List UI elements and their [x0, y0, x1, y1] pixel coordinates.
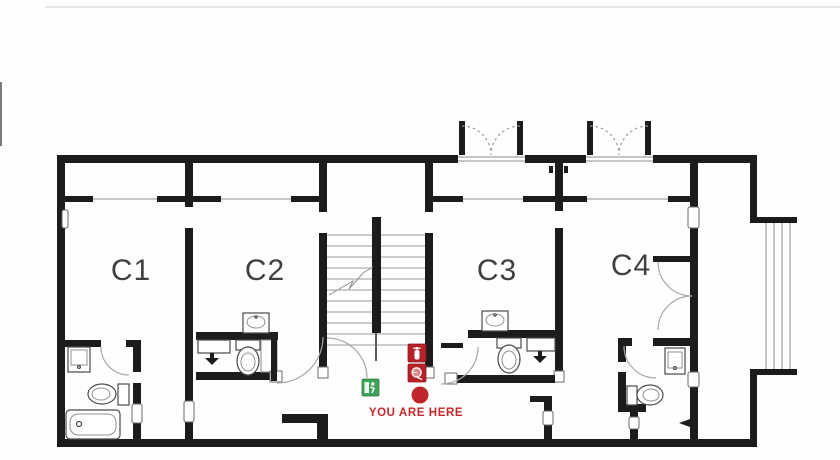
toilet	[236, 340, 260, 375]
shower-door-arc	[101, 347, 129, 375]
fire-extinguisher-icon	[408, 344, 426, 362]
fire-hose-reel-icon	[408, 364, 426, 382]
entry-door-right	[586, 121, 653, 161]
bathroom-c4	[618, 338, 698, 442]
bathtub	[66, 410, 120, 439]
vanity	[527, 338, 555, 363]
closet-partition-lines	[65, 196, 690, 202]
room-label-c4: C4	[611, 249, 651, 282]
vestibule-wall	[530, 396, 553, 439]
sink	[68, 347, 90, 372]
door-arc	[624, 346, 656, 378]
top-rule	[45, 6, 840, 8]
c4-alcove-doors	[653, 256, 692, 330]
you-are-here-dot	[412, 387, 429, 404]
corridor-wall	[282, 414, 328, 439]
door-stop	[679, 419, 690, 427]
bathroom-c2	[196, 313, 323, 383]
room-label-c2: C2	[245, 254, 285, 287]
stair-stringer	[372, 217, 381, 333]
stair-break-line	[329, 267, 373, 295]
edge-artifact	[0, 82, 2, 146]
room-label-c3: C3	[477, 254, 517, 287]
bathroom-c1	[65, 340, 142, 439]
floor-plan-drawing: C1 C2 C3 C4 YOU ARE HERE	[0, 0, 840, 460]
you-are-here-label: YOU ARE HERE	[369, 407, 463, 419]
entry-door-left	[458, 121, 525, 161]
sink	[243, 313, 269, 333]
sink	[482, 311, 508, 331]
stair-exit-door-arc	[327, 338, 367, 378]
toilet	[88, 384, 129, 405]
emergency-exit-icon	[362, 379, 379, 396]
toilet	[627, 385, 663, 405]
vanity	[198, 340, 230, 365]
door-arc	[277, 337, 323, 383]
toilet	[497, 338, 521, 373]
external-steps	[766, 223, 790, 369]
door-leaf	[441, 343, 463, 348]
sink	[665, 348, 685, 374]
door-leaf	[271, 333, 277, 381]
bathroom-c3	[441, 311, 555, 384]
room-label-c1: C1	[111, 254, 151, 287]
floor-plan-screenshot: C1 C2 C3 C4 YOU ARE HERE	[0, 0, 840, 460]
